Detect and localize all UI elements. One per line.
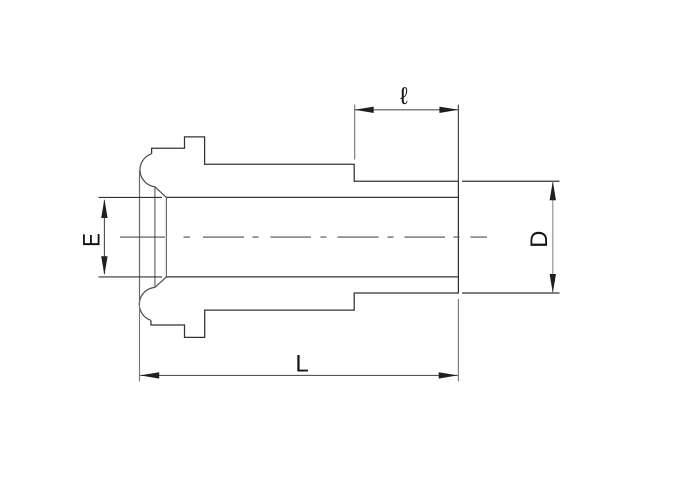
- svg-text:ℓ: ℓ: [400, 83, 408, 110]
- svg-text:L: L: [295, 351, 308, 378]
- svg-text:E: E: [78, 233, 105, 247]
- svg-text:D: D: [526, 231, 553, 248]
